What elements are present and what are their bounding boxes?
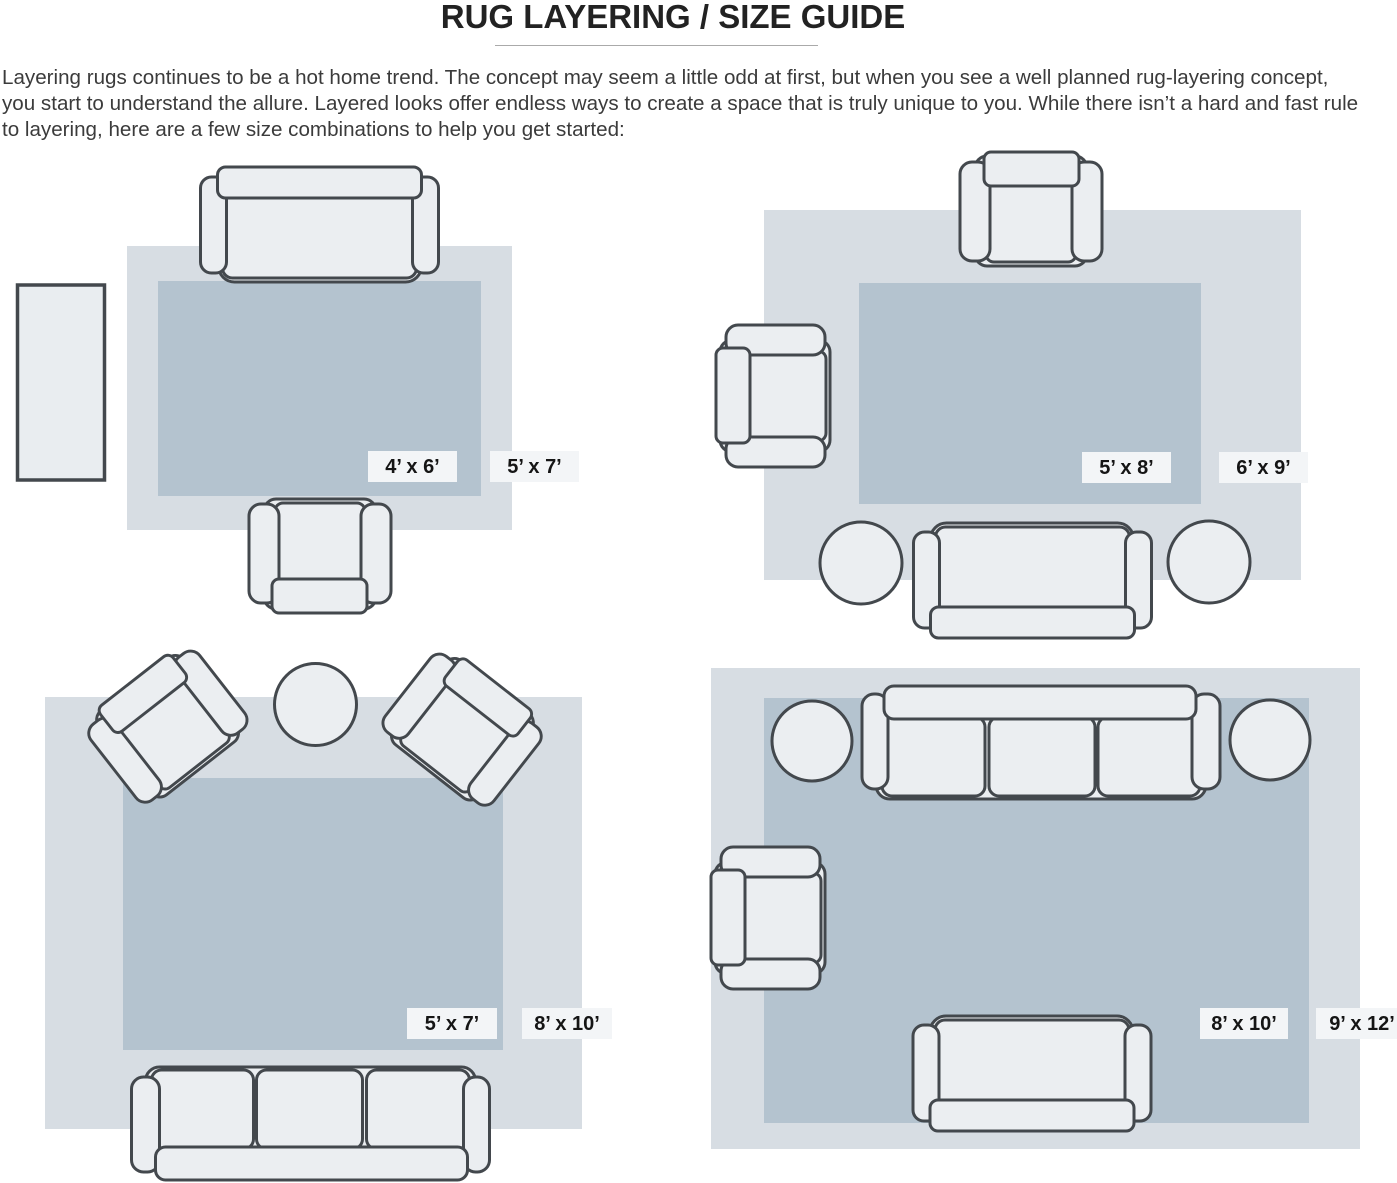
svg-text:5’ x 7’: 5’ x 7’ bbox=[507, 456, 562, 478]
svg-text:9’ x 12’: 9’ x 12’ bbox=[1329, 1013, 1395, 1035]
svg-text:Layering rugs continues to be: Layering rugs continues to be a hot home… bbox=[2, 66, 1328, 89]
svg-text:4’ x 6’: 4’ x 6’ bbox=[385, 456, 440, 478]
svg-text:to layering, here are a few si: to layering, here are a few size combina… bbox=[2, 118, 625, 141]
svg-text:6’ x 9’: 6’ x 9’ bbox=[1236, 457, 1291, 479]
svg-text:8’ x 10’: 8’ x 10’ bbox=[1211, 1013, 1277, 1035]
svg-text:5’ x 8’: 5’ x 8’ bbox=[1099, 457, 1154, 479]
svg-text:5’ x 7’: 5’ x 7’ bbox=[425, 1013, 480, 1035]
svg-text:RUG LAYERING / SIZE GUIDE: RUG LAYERING / SIZE GUIDE bbox=[441, 0, 906, 35]
svg-text:you start to understand the al: you start to understand the allure. Laye… bbox=[2, 92, 1358, 115]
svg-text:8’ x 10’: 8’ x 10’ bbox=[534, 1013, 600, 1035]
